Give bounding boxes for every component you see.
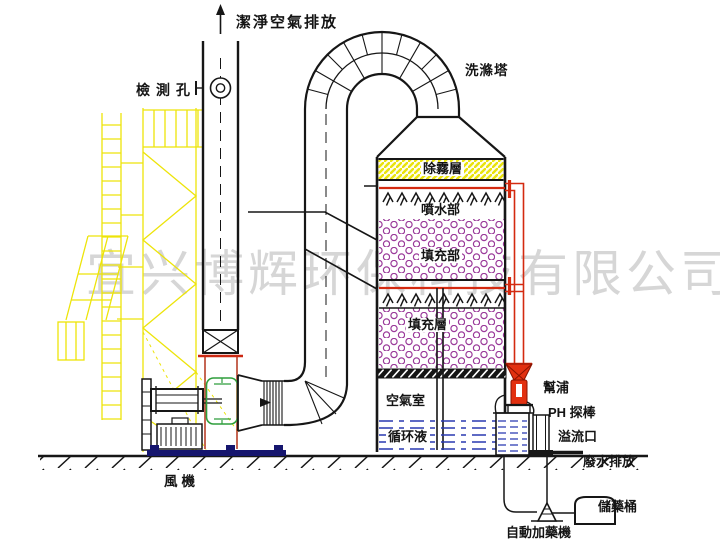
packing-section-label: 填充部 xyxy=(419,249,462,263)
fan-assembly xyxy=(142,357,286,456)
exhaust-stack xyxy=(196,4,243,356)
overflow-port-label: 溢流口 xyxy=(558,426,597,445)
clean-air-outlet-label: 潔淨空氣排放 xyxy=(236,11,338,32)
fan-label: 風機 xyxy=(164,470,199,490)
process-diagram: 宜兴博辉环保科技有限公司 xyxy=(0,0,720,540)
demister-layer-label: 除霧層 xyxy=(421,162,464,176)
circulating-liquid-label: 循环液 xyxy=(386,430,429,444)
spray-section-label: 噴水部 xyxy=(419,203,462,217)
chemical-barrel-label: 儲藥桶 xyxy=(598,496,637,515)
dosing-machine-label: 自動加藥機 xyxy=(506,522,571,540)
inspection-port-label: 檢測孔 xyxy=(136,80,196,100)
wastewater-discharge-label: 廢水排放 xyxy=(583,451,635,470)
inspection-port-icon xyxy=(211,78,231,98)
scrubber-tower-label: 洗滌塔 xyxy=(465,59,509,79)
ph-probe-label: PH 探棒 xyxy=(548,402,596,421)
packing-layer-label: 填充層 xyxy=(406,318,449,332)
spray-nozzles-2 xyxy=(383,294,505,307)
fan-base xyxy=(147,450,286,456)
overflow-standpipe xyxy=(533,415,549,453)
ground-line xyxy=(38,456,648,470)
dosing-machine-icon xyxy=(538,503,556,521)
fan-scroll-housing xyxy=(207,378,238,424)
circulation-pump xyxy=(505,364,533,413)
circulation-piping xyxy=(505,180,532,366)
support-plate xyxy=(378,369,506,378)
air-chamber-label: 空氣室 xyxy=(386,390,425,409)
pump-label: 幫浦 xyxy=(543,377,569,396)
